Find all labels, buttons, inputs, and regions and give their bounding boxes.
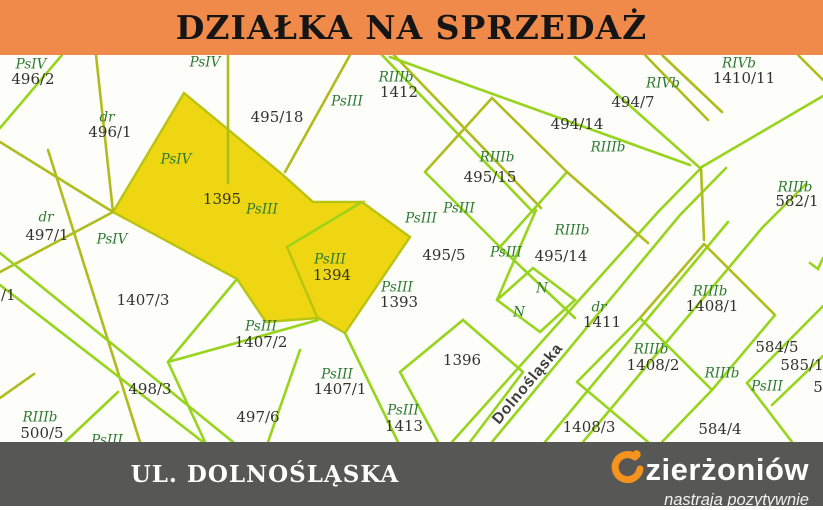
landuse-code-label: PsIII <box>442 201 475 217</box>
parcel-number-label: 5 <box>813 378 823 396</box>
parcel-number-label: 585/1 <box>780 356 823 374</box>
parcel-boundary-line <box>810 258 823 269</box>
parcel-number-label: 496/2 <box>11 70 54 88</box>
parcel-number-label: 1407/3 <box>117 291 170 309</box>
street-banner-label: UL. DOLNOŚLĄSKA <box>0 461 530 488</box>
parcel-number-label: 1411 <box>583 313 621 331</box>
parcel-number-label: 1408/2 <box>627 356 680 374</box>
parcel-boundary-line <box>701 168 704 240</box>
parcel-number-label: 494/7 <box>611 93 654 111</box>
parcel-number-label: 498/1 <box>0 286 16 304</box>
header-banner: DZIAŁKA NA SPRZEDAŻ <box>0 0 823 55</box>
parcel-number-label: 1393 <box>380 293 418 311</box>
parcel-boundary-line <box>0 374 34 398</box>
parcel-number-label: 1394 <box>313 266 351 284</box>
page-title: DZIAŁKA NA SPRZEDAŻ <box>176 8 648 47</box>
landuse-code-label: PsIII <box>750 379 783 395</box>
parcel-number-label: 494/14 <box>551 115 604 133</box>
parcel-boundary-line <box>168 279 237 362</box>
landuse-code-label: N <box>512 305 526 321</box>
parcel-number-label: 498/3 <box>128 380 171 398</box>
parcel-number-label: 497/1 <box>25 226 68 244</box>
parcel-number-label: 1396 <box>443 351 481 369</box>
parcel-number-label: 1408/3 <box>563 418 616 436</box>
parcel-number-label: 1407/1 <box>314 380 367 398</box>
parcel-boundary-line <box>497 268 575 332</box>
parcel-number-label: 500/5 <box>20 424 63 442</box>
parcel-number-label: 495/18 <box>251 108 304 126</box>
landuse-code-label: PsIII <box>330 94 363 110</box>
landuse-code-label: RIVb <box>645 76 680 92</box>
landuse-code-label: PsIV <box>189 55 222 71</box>
logo-tagline: nastraja pozytywnie <box>610 491 809 510</box>
parcel-number-label: 1412 <box>380 83 418 101</box>
landuse-code-label: PsIV <box>160 152 193 168</box>
landuse-code-label: RIIIb <box>590 140 626 156</box>
city-logo: zierżoniów nastraja pozytywnie <box>610 448 809 510</box>
parcel-number-label: 584/4 <box>698 420 741 438</box>
parcel-boundary-line <box>268 350 300 442</box>
parcel-boundary-line <box>700 96 823 168</box>
footer-banner: UL. DOLNOŚLĄSKA zierżoniów nastraja pozy… <box>0 442 823 506</box>
landuse-code-label: RIIIb <box>479 150 515 166</box>
parcel-number-label: 1395 <box>203 190 241 208</box>
parcel-number-label: 1407/2 <box>235 333 288 351</box>
landuse-code-label: PsIII <box>404 211 437 227</box>
landuse-code-label: dr <box>38 210 55 226</box>
parcel-number-label: 1413 <box>385 417 423 435</box>
parcel-number-label: 582/1 <box>775 192 818 210</box>
parcel-number-label: 1410/11 <box>713 69 775 87</box>
landuse-code-label: RIIIb <box>704 366 740 382</box>
cadastral-map: PsIV496/2dr496/1PsIV495/18PsIIIRIIIb1412… <box>0 0 823 506</box>
parcel-boundary-line <box>452 166 703 442</box>
landuse-code-label: PsIV <box>96 232 129 248</box>
logo-city-name: zierżoniów <box>646 454 809 485</box>
parcel-boundary-line <box>798 55 823 80</box>
flyer: PsIV496/2dr496/1PsIV495/18PsIIIRIIIb1412… <box>0 0 823 506</box>
parcel-number-label: 1408/1 <box>686 297 739 315</box>
parcel-number-label: 495/15 <box>464 168 517 186</box>
landuse-code-label: N <box>535 281 549 297</box>
landuse-code-label: RIIIb <box>554 223 590 239</box>
parcel-number-label: 495/5 <box>422 246 465 264</box>
landuse-code-label: PsIII <box>245 202 278 218</box>
logo-d-swirl-icon <box>610 448 644 490</box>
parcel-number-label: 584/5 <box>755 338 798 356</box>
landuse-code-label: PsIII <box>489 245 522 261</box>
parcel-number-label: 495/14 <box>535 247 588 265</box>
parcel-number-label: 497/6 <box>236 408 279 426</box>
parcel-number-label: 496/1 <box>88 123 131 141</box>
